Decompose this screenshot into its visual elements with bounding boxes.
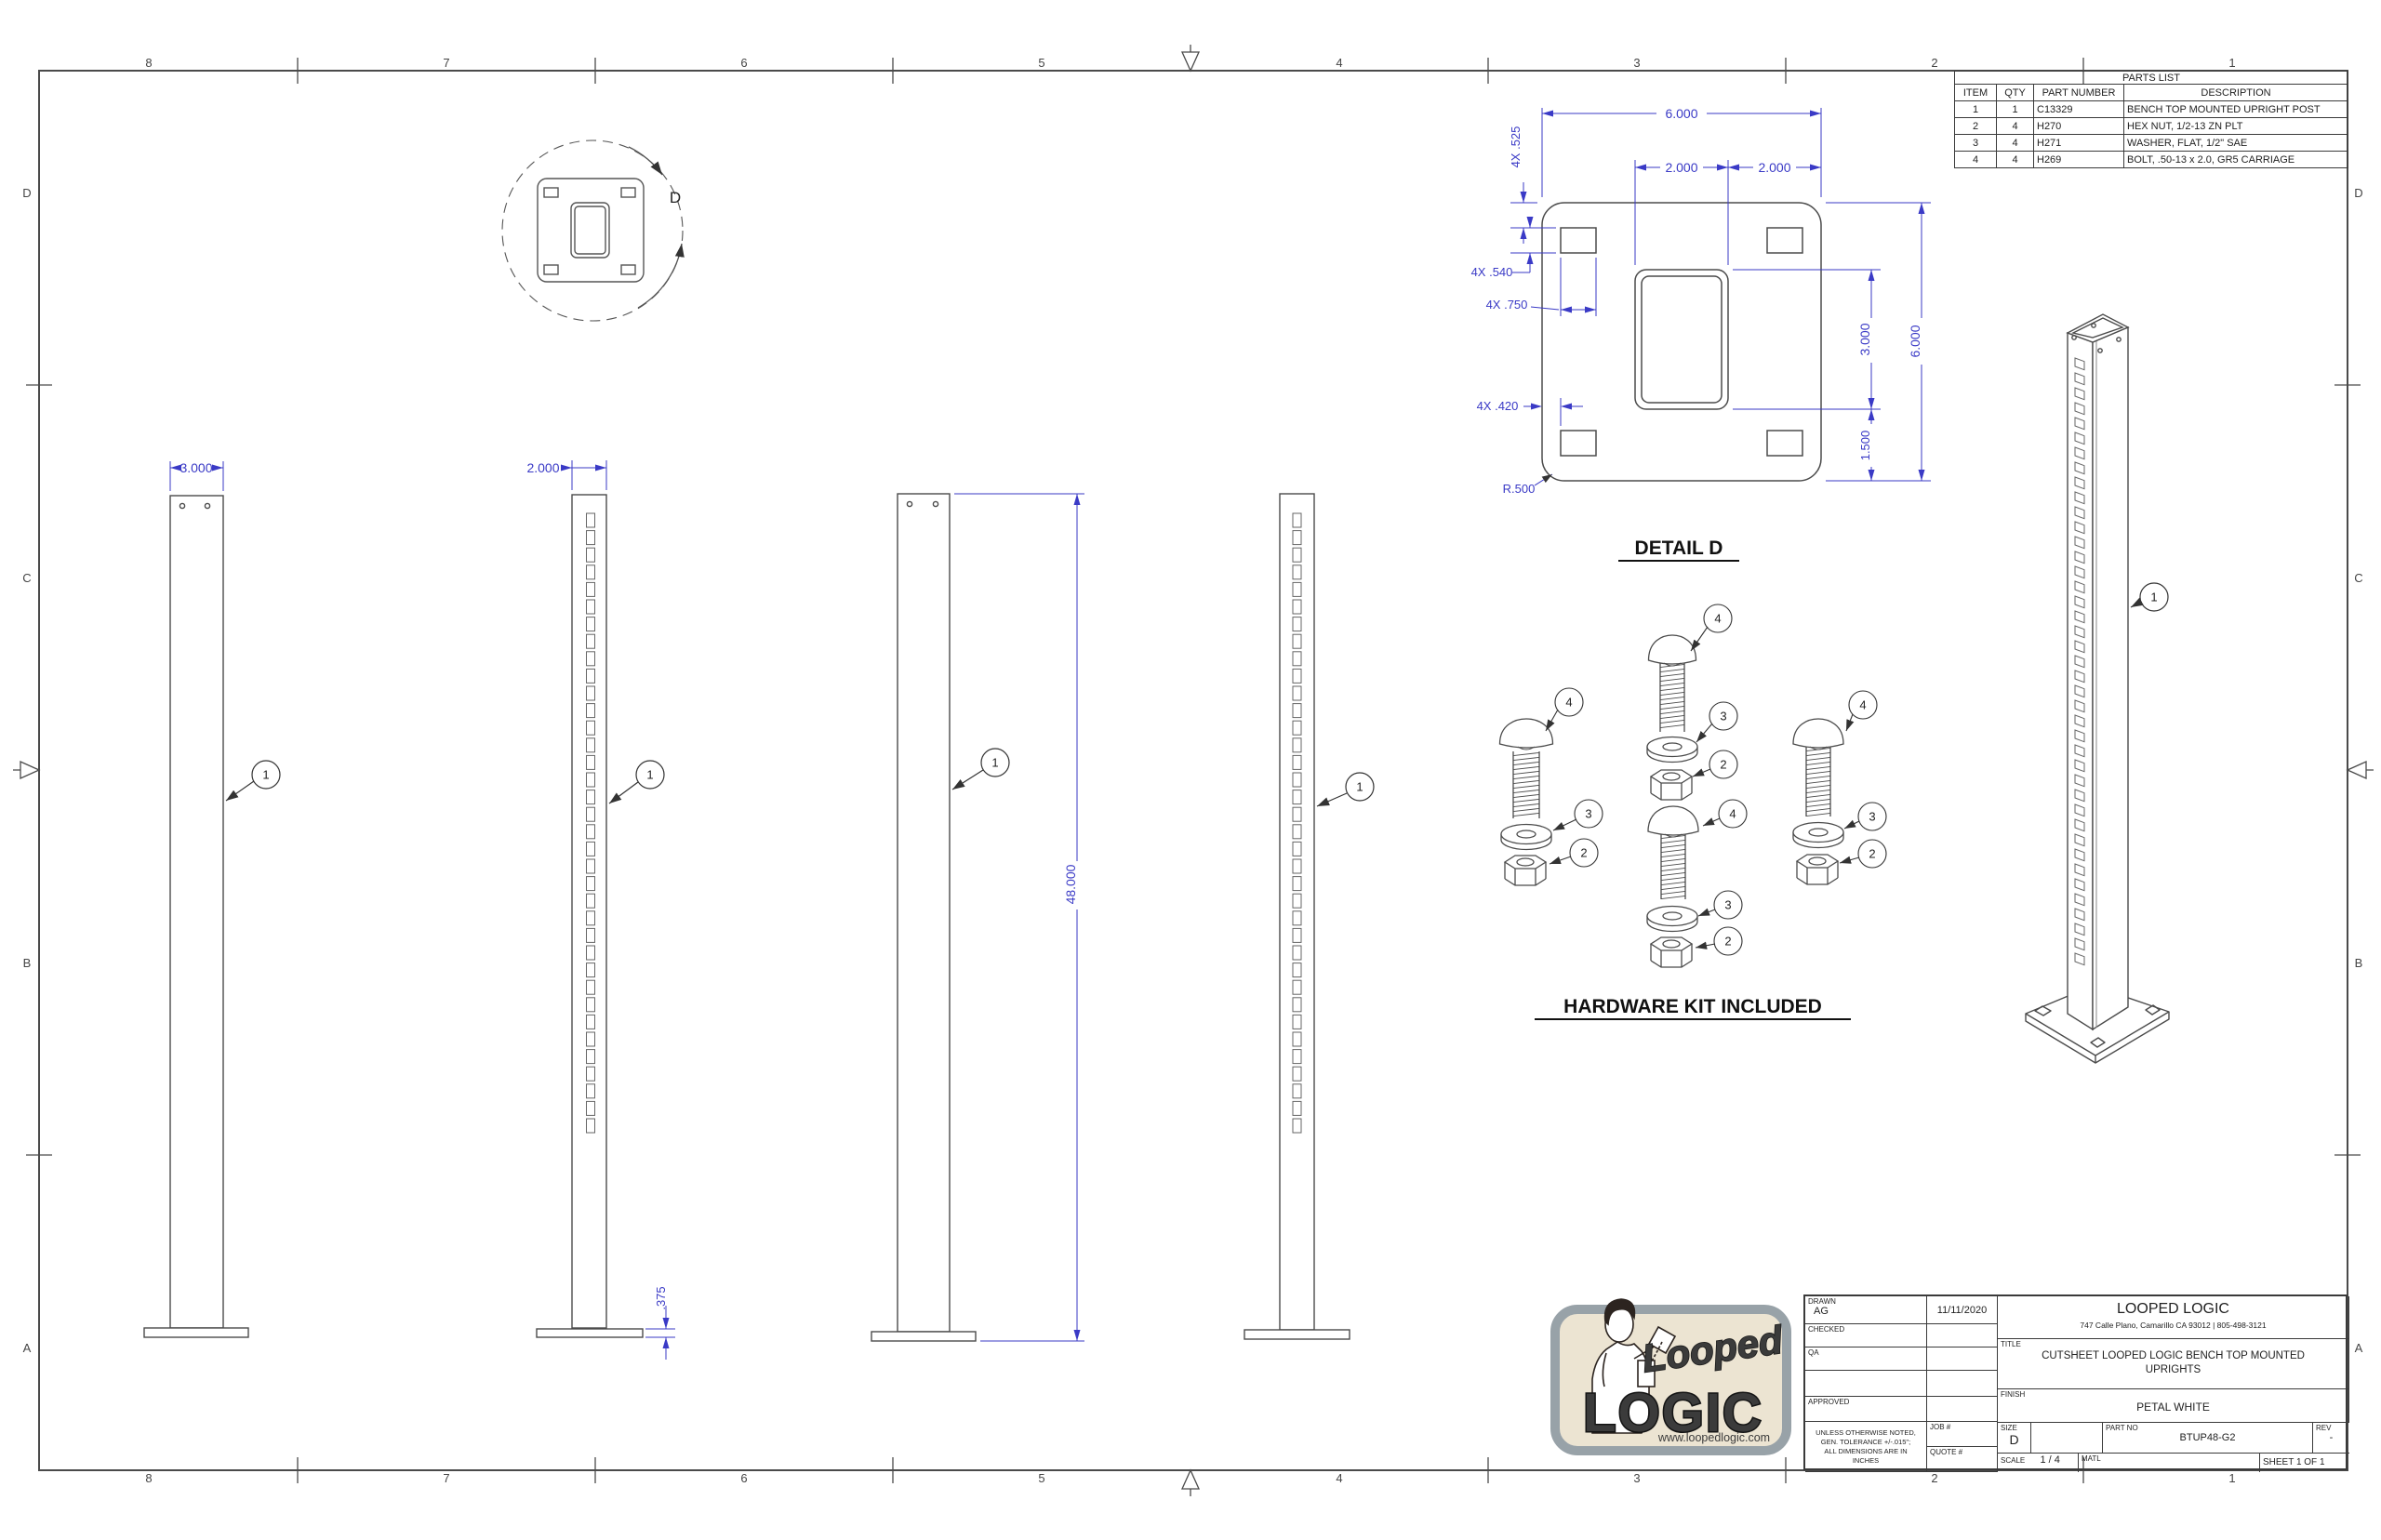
dim-slot-side-offset: 4X .420: [1477, 399, 1519, 413]
svg-text:A: A: [23, 1341, 32, 1355]
quote-number-cell: QUOTE #: [1927, 1447, 1998, 1472]
border-frame: [13, 45, 2374, 1496]
svg-text:6: 6: [740, 1471, 747, 1485]
post-front-view-a: 3.000 1: [144, 460, 280, 1337]
drawn-cell: DRAWN AG: [1805, 1296, 1927, 1324]
svg-text:B: B: [2355, 956, 2363, 970]
svg-text:8: 8: [145, 56, 152, 70]
svg-text:3: 3: [1633, 1471, 1640, 1485]
hardware-kit: 4 3 2 4 3 2 4 3 2 4 3 2 HARDWARE KIT INC…: [1500, 604, 1887, 1019]
title-cell: TITLE CUTSHEET LOOPED LOGIC BENCH TOP MO…: [1998, 1339, 2349, 1389]
svg-text:C: C: [22, 571, 31, 585]
dim-slot-top-offset: 4X .525: [1509, 126, 1523, 168]
table-row: 34 H271WASHER, FLAT, 1/2" SAE: [1955, 135, 2348, 152]
svg-text:3: 3: [1633, 56, 1640, 70]
tolerance-note: UNLESS OTHERWISE NOTED, GEN. TOLERANCE +…: [1805, 1422, 1927, 1472]
svg-text:5: 5: [1038, 1471, 1044, 1485]
company-address: 747 Calle Plano, Camarillo CA 93012 | 80…: [2001, 1321, 2346, 1330]
balloon-post: 1: [262, 768, 269, 782]
qa-cell: QA: [1805, 1347, 1927, 1371]
balloon-post: 1: [991, 756, 998, 770]
centering-arrow-top: [1182, 45, 1199, 71]
table-row: 24 H270HEX NUT, 1/2-13 ZN PLT: [1955, 118, 2348, 135]
balloon-nut: 2: [1869, 847, 1875, 861]
col-description: DESCRIPTION: [2124, 85, 2348, 101]
dim-tube-to-bottom: 1.500: [1858, 431, 1872, 461]
dim-post-height: 48.000: [1063, 864, 1078, 904]
balloon-nut: 2: [1724, 935, 1731, 949]
svg-text:2: 2: [1931, 56, 1937, 70]
drawn-date-cell: 11/11/2020: [1927, 1296, 1998, 1324]
svg-text:4: 4: [1336, 1471, 1342, 1485]
svg-text:D: D: [2354, 186, 2362, 200]
cage-cell: [2031, 1423, 2103, 1454]
svg-text:A: A: [2355, 1341, 2363, 1355]
scale-value: 1 / 4: [2027, 1454, 2059, 1466]
table-row: 44 H269BOLT, .50-13 x 2.0, GR5 CARRIAGE: [1955, 152, 2348, 168]
dim-plate-width: 6.000: [1665, 106, 1697, 121]
col-qty: QTY: [1997, 85, 2034, 101]
svg-text:7: 7: [443, 1471, 449, 1485]
logo-url: www.loopedlogic.com: [1657, 1431, 1770, 1444]
balloon-post: 1: [1356, 780, 1363, 794]
finish-cell: FINISH PETAL WHITE: [1998, 1389, 2349, 1423]
balloon-nut: 2: [1580, 846, 1587, 860]
svg-text:6: 6: [740, 56, 747, 70]
detail-d-view: 6.000 2.000 2.000 3.000 6.000 1.500 4X .…: [1471, 106, 1931, 561]
detail-d-title: DETAIL D: [1635, 538, 1723, 559]
blank-row: [1805, 1371, 1927, 1397]
centering-arrow-right: [2348, 762, 2374, 778]
drawn-by-value: AG: [1808, 1306, 1829, 1317]
company-name: LOOPED LOGIC: [2001, 1301, 2346, 1318]
dim-tube-width: 2.000: [1665, 160, 1697, 175]
svg-text:4: 4: [1336, 56, 1342, 70]
svg-text:7: 7: [443, 56, 449, 70]
detail-arrow-label: D: [670, 189, 681, 206]
centering-arrow-left: [13, 762, 39, 778]
dim-slot-height: 4X .540: [1471, 265, 1513, 279]
dim-slot-width: 4X .750: [1486, 298, 1528, 312]
balloon-bolt: 4: [1729, 807, 1736, 821]
svg-text:2: 2: [1931, 1471, 1937, 1485]
parts-list-title: PARTS LIST: [1955, 72, 2348, 85]
part-no-cell: PART NO BTUP48-G2: [2103, 1423, 2313, 1454]
post-side-view-b: 1: [1244, 494, 1374, 1339]
rev-cell: REV -: [2313, 1423, 2349, 1454]
balloon-washer: 3: [1720, 710, 1726, 724]
post-side-view-a: 2.000 .375 1: [526, 460, 675, 1360]
size-value: D: [2001, 1432, 2028, 1447]
balloon-post: 1: [2150, 591, 2157, 604]
table-row: 11 C13329BENCH TOP MOUNTED UPRIGHT POST: [1955, 101, 2348, 118]
balloon-bolt: 4: [1714, 612, 1721, 626]
checked-cell: CHECKED: [1805, 1324, 1927, 1347]
checked-date-cell: [1927, 1324, 1998, 1347]
detail-source-circle-view: D: [502, 140, 683, 321]
dim-tube-to-edge: 2.000: [1758, 160, 1790, 175]
balloon-post: 1: [646, 768, 653, 782]
drawing-sheet: 87 65 43 21 87 65 43 21 DC BA DC BA D: [0, 0, 2381, 1540]
sheet-cell: SHEET 1 OF 1: [2260, 1454, 2349, 1472]
parts-list-table: PARTS LIST ITEM QTY PART NUMBER DESCRIPT…: [1954, 71, 2348, 168]
balloon-bolt: 4: [1565, 696, 1572, 710]
matl-cell: MATL: [2079, 1454, 2260, 1472]
balloon-washer: 3: [1869, 810, 1875, 824]
svg-text:8: 8: [145, 1471, 152, 1485]
parts-list-header: ITEM QTY PART NUMBER DESCRIPTION: [1955, 85, 2348, 101]
job-number-cell: JOB #: [1927, 1422, 1998, 1447]
drawing-title-line2: UPRIGHTS: [2001, 1364, 2346, 1375]
dim-plate-height: 6.000: [1908, 325, 1922, 357]
centering-arrow-bottom: [1182, 1470, 1199, 1496]
dim-tube-height: 3.000: [1857, 323, 1872, 355]
dim-post-front-width: 3.000: [180, 460, 212, 475]
col-item: ITEM: [1955, 85, 1997, 101]
part-no-value: BTUP48-G2: [2106, 1432, 2309, 1443]
title-block: DRAWN AG 11/11/2020 CHECKED QA APPROVED …: [1803, 1294, 2348, 1470]
post-front-view-b: 48.000 1: [871, 494, 1084, 1341]
approved-cell: APPROVED: [1805, 1397, 1927, 1422]
svg-text:1: 1: [2228, 56, 2235, 70]
dim-base-thickness: .375: [654, 1286, 668, 1309]
company-cell: LOOPED LOGIC 747 Calle Plano, Camarillo …: [1998, 1296, 2349, 1339]
hardware-kit-title: HARDWARE KIT INCLUDED: [1563, 996, 1822, 1017]
dim-post-side-width: 2.000: [526, 460, 559, 475]
balloon-washer: 3: [1724, 898, 1731, 912]
svg-text:C: C: [2354, 571, 2362, 585]
dim-corner-radius: R.500: [1503, 482, 1536, 496]
hardware-balloons: [1546, 604, 1886, 955]
size-cell: SIZE D: [1998, 1423, 2031, 1454]
svg-text:D: D: [22, 186, 31, 200]
svg-text:5: 5: [1038, 56, 1044, 70]
scale-cell: SCALE 1 / 4: [1998, 1454, 2079, 1472]
balloon-bolt: 4: [1859, 698, 1866, 712]
balloon-washer: 3: [1585, 807, 1591, 821]
drawing-title-line1: CUTSHEET LOOPED LOGIC BENCH TOP MOUNTED: [2001, 1350, 2346, 1361]
rev-value: -: [2316, 1432, 2347, 1443]
col-part-number: PART NUMBER: [2034, 85, 2124, 101]
svg-text:1: 1: [2228, 1471, 2235, 1485]
zone-labels: 87 65 43 21 87 65 43 21 DC BA DC BA: [22, 56, 2362, 1485]
svg-text:B: B: [23, 956, 32, 970]
finish-value: PETAL WHITE: [2001, 1401, 2346, 1414]
isometric-view: 1: [2026, 314, 2169, 1063]
balloon-nut: 2: [1720, 758, 1726, 772]
company-logo: Looped LOGIC www.loopedlogic.com: [1549, 1294, 1793, 1457]
